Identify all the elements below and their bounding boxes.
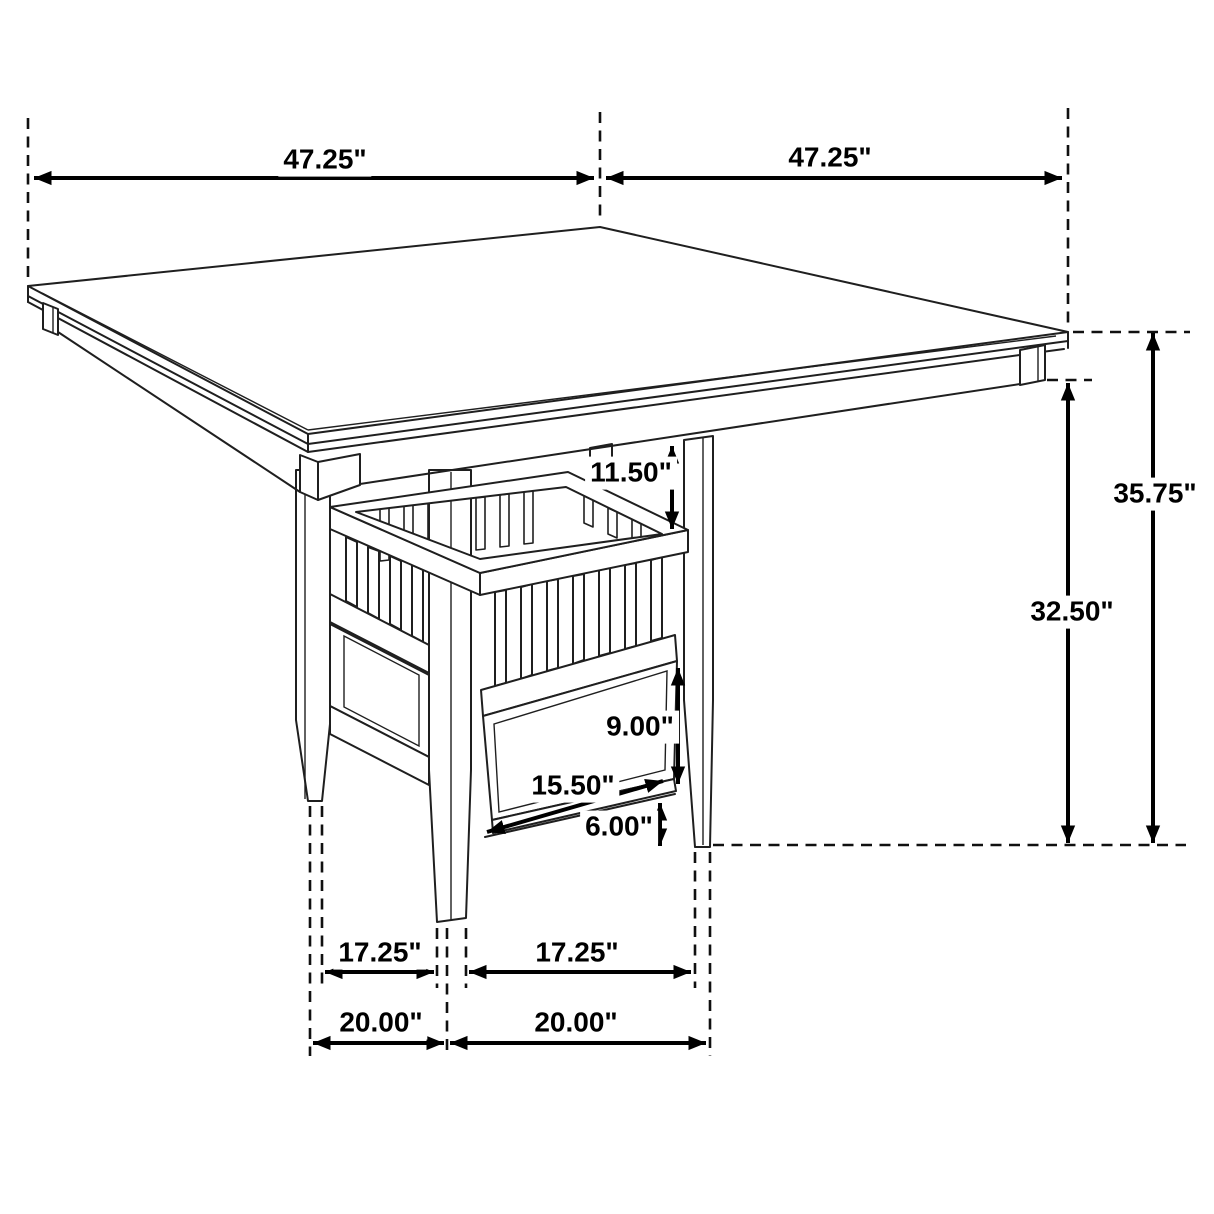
dim-label-inner-span-right: 17.25"	[530, 937, 623, 970]
dim-label-overall-height: 35.75"	[1108, 478, 1201, 511]
tabletop	[28, 227, 1068, 452]
dim-label-underside-height: 32.50"	[1025, 596, 1118, 629]
right-leg	[684, 436, 713, 847]
dimension-diagram: 47.25" 47.25" 35.75" 32.50" 11.50" 9.00"…	[0, 0, 1214, 1214]
dim-label-inner-span-left: 17.25"	[333, 937, 426, 970]
dim-label-top-width: 47.25"	[278, 144, 371, 177]
front-leg	[429, 470, 471, 922]
dim-label-top-to-shelf: 11.50"	[585, 457, 677, 490]
front-corner-block	[300, 455, 318, 500]
dim-label-drawer-width: 15.50"	[526, 770, 619, 803]
left-corner-block	[43, 303, 58, 335]
dim-label-outer-span-right: 20.00"	[529, 1007, 622, 1040]
left-leg	[296, 470, 330, 801]
dim-label-top-depth: 47.25"	[783, 142, 876, 175]
dim-label-outer-span-left: 20.00"	[334, 1007, 427, 1040]
dim-label-drawer-height: 9.00"	[601, 711, 679, 744]
dim-label-floor-clearance: 6.00"	[580, 811, 658, 844]
right-corner-block	[1020, 345, 1045, 385]
tabletop-surface	[28, 227, 1068, 434]
